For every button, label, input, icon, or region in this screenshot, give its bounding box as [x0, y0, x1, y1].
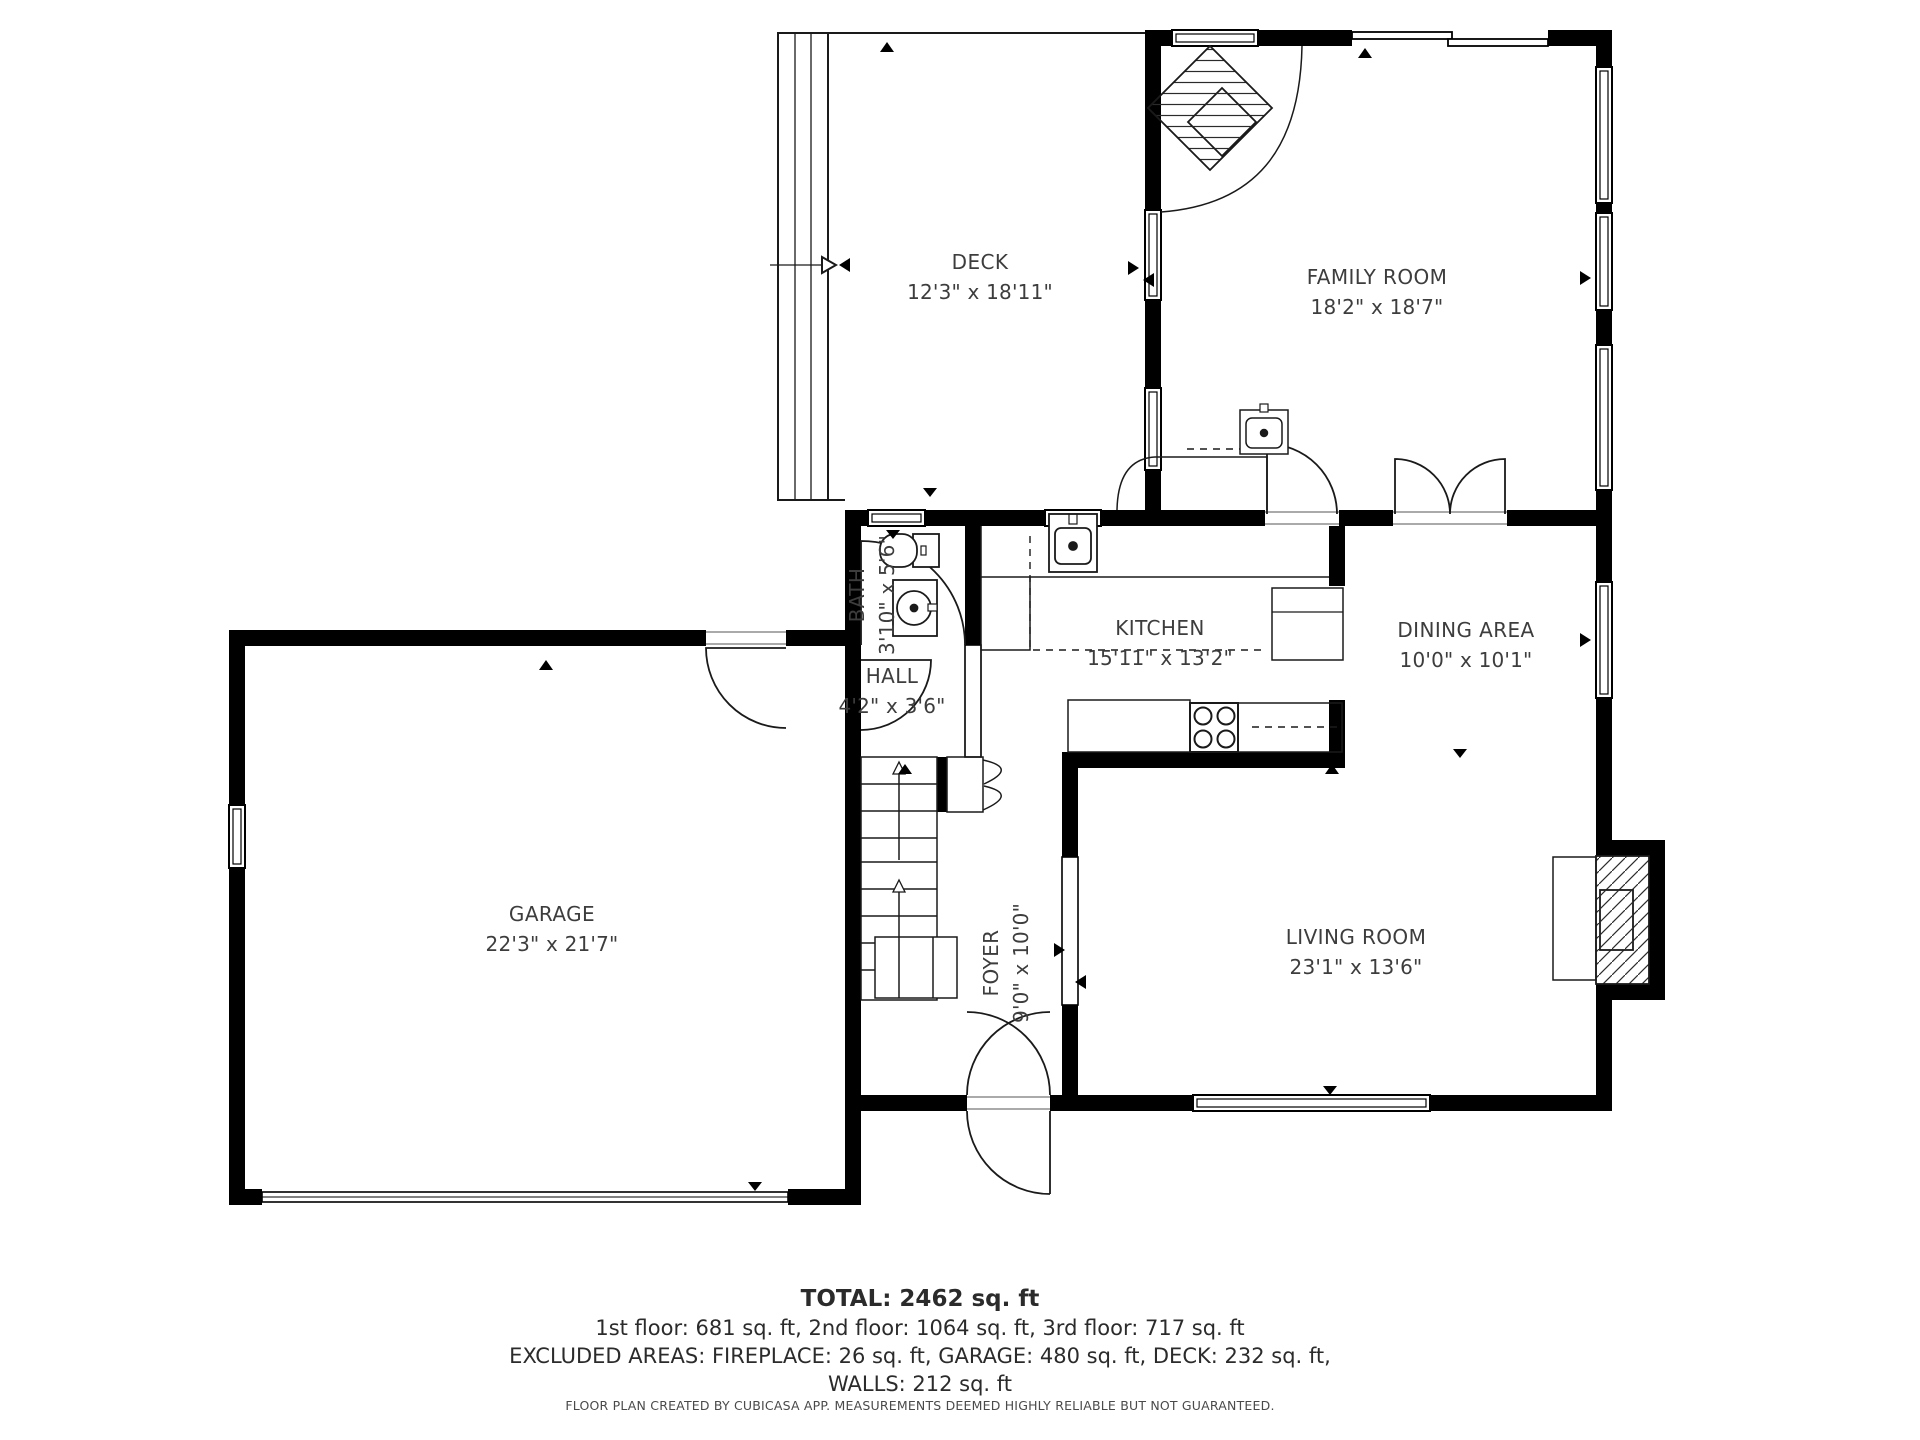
room-label-garage: GARAGE 22'3" x 21'7" — [402, 899, 702, 959]
window-icon — [1193, 1095, 1430, 1111]
room-name: LIVING ROOM — [1206, 922, 1506, 952]
room-dims: 18'2" x 18'7" — [1227, 292, 1527, 322]
room-label-deck: DECK 12'3" x 18'11" — [830, 247, 1130, 307]
room-label-dining-area: DINING AREA 10'0" x 10'1" — [1316, 615, 1616, 675]
floor-areas: 1st floor: 681 sq. ft, 2nd floor: 1064 s… — [0, 1314, 1840, 1342]
room-label-kitchen: KITCHEN 15'11" x 13'2" — [1010, 613, 1310, 673]
window-icon — [1596, 345, 1612, 490]
double-door-arc-icon — [1395, 459, 1505, 514]
sliding-door-icon — [1352, 30, 1548, 46]
doors — [706, 444, 1505, 1194]
room-dims: 9'0" x 10'0" — [1006, 813, 1036, 1113]
door-gaps — [706, 510, 1507, 1111]
total-area: TOTAL: 2462 sq. ft — [0, 1284, 1840, 1314]
room-label-foyer: FOYER 9'0" x 10'0" — [976, 813, 1036, 1113]
bifold-door-icon — [983, 760, 1001, 810]
room-name: FAMILY ROOM — [1227, 262, 1527, 292]
excluded-areas: EXCLUDED AREAS: FIREPLACE: 26 sq. ft, GA… — [0, 1342, 1840, 1370]
room-dims: 10'0" x 10'1" — [1316, 645, 1616, 675]
room-dims: 15'11" x 13'2" — [1010, 643, 1310, 673]
stove-icon — [1190, 703, 1238, 752]
room-label-living-room: LIVING ROOM 23'1" x 13'6" — [1206, 922, 1506, 982]
room-label-family-room: FAMILY ROOM 18'2" x 18'7" — [1227, 262, 1527, 322]
room-label-hall: HALL 4'2" x 3'6" — [742, 661, 1042, 721]
room-name: KITCHEN — [1010, 613, 1310, 643]
area-summary: TOTAL: 2462 sq. ft 1st floor: 681 sq. ft… — [0, 1284, 1840, 1398]
room-dims: 4'2" x 3'6" — [742, 691, 1042, 721]
window-icon — [229, 805, 245, 868]
garage-door-icon — [262, 1189, 788, 1205]
room-name: HALL — [742, 661, 1042, 691]
window-icon — [1596, 67, 1612, 203]
family-room-fireplace — [1148, 46, 1302, 212]
kitchen-sink-icon — [1049, 514, 1097, 572]
closet — [947, 757, 983, 812]
room-dims: 12'3" x 18'11" — [830, 277, 1130, 307]
front-door-arc-icon — [967, 1111, 1050, 1194]
room-name: FOYER — [976, 813, 1006, 1113]
disclaimer-text: FLOOR PLAN CREATED BY CUBICASA APP. MEAS… — [0, 1398, 1840, 1413]
window-icon — [1172, 30, 1258, 46]
floor-plan-page: DECK 12'3" x 18'11" FAMILY ROOM 18'2" x … — [0, 0, 1920, 1440]
living-room-fireplace — [1553, 856, 1649, 984]
wall-area: WALLS: 212 sq. ft — [0, 1370, 1840, 1398]
room-name: DECK — [830, 247, 1130, 277]
room-name: DINING AREA — [1316, 615, 1616, 645]
family-room-wet-bar — [1117, 404, 1288, 510]
room-dims: 22'3" x 21'7" — [402, 929, 702, 959]
cased-opening — [1062, 857, 1078, 1005]
room-dims: 23'1" x 13'6" — [1206, 952, 1506, 982]
room-name: GARAGE — [402, 899, 702, 929]
window-icon — [1596, 213, 1612, 310]
window-icon — [1145, 210, 1161, 300]
bar-sink-icon — [1240, 404, 1288, 454]
